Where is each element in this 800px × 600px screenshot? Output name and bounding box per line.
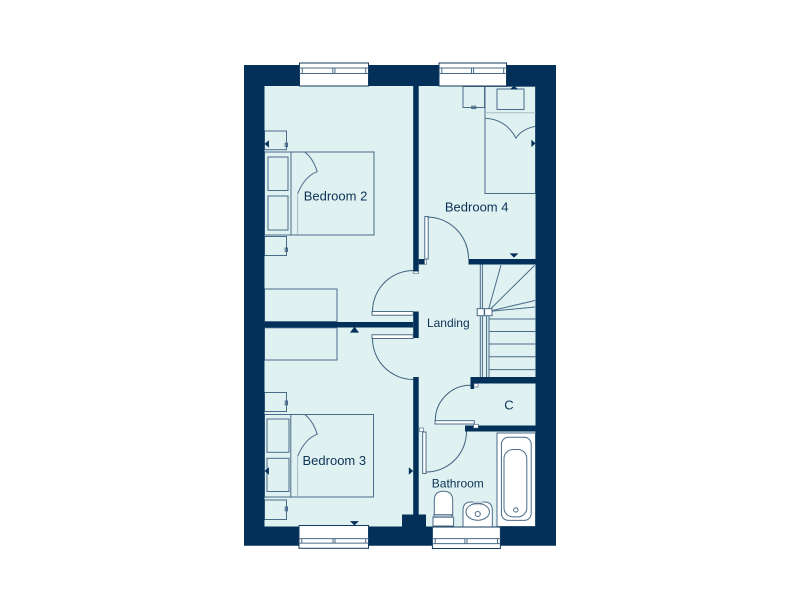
svg-text:Bedroom 4: Bedroom 4 (445, 200, 509, 215)
svg-text:Bedroom 2: Bedroom 2 (304, 188, 368, 203)
svg-text:C: C (504, 398, 513, 413)
svg-text:Bathroom: Bathroom (432, 476, 484, 490)
svg-text:Bedroom 3: Bedroom 3 (303, 453, 367, 468)
svg-text:Landing: Landing (427, 316, 470, 330)
